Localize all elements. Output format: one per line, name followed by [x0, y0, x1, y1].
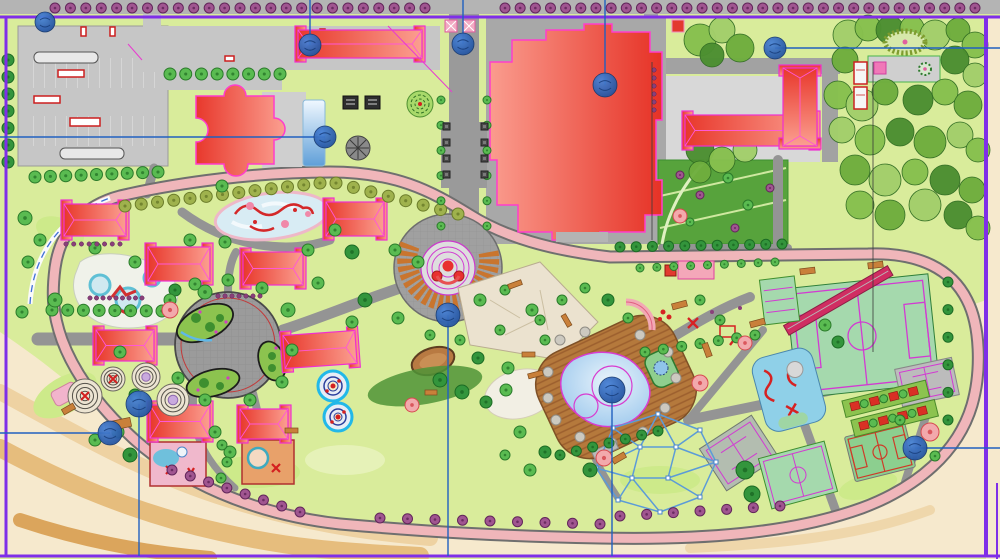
apartment-block: [145, 243, 213, 285]
tree-center-dot: [928, 7, 931, 10]
tree-center-dot: [898, 7, 901, 10]
forest-canopy: [903, 85, 933, 115]
callout-marker[interactable]: [903, 436, 927, 460]
hedge-shrub: [120, 296, 124, 300]
tree-center-dot: [220, 184, 223, 187]
hedge-shrub: [87, 242, 91, 246]
pergola: [343, 96, 358, 109]
tree-center-dot: [662, 348, 665, 351]
tree-center-dot: [23, 216, 27, 220]
tree-center-dot: [777, 7, 780, 10]
tree-center-dot: [837, 7, 840, 10]
tree-center-dot: [750, 492, 754, 496]
tree-center-dot: [100, 7, 103, 10]
tree-center-dot: [331, 7, 334, 10]
pavilion-pad: [874, 62, 886, 74]
tree-center-dot: [248, 398, 251, 401]
rope-web-node: [658, 510, 662, 514]
forest-canopy: [959, 177, 985, 203]
rope-web-node: [630, 476, 634, 480]
tree-center-dot: [424, 7, 427, 10]
callout-marker[interactable]: [98, 421, 122, 445]
forest-canopy: [689, 161, 711, 183]
tree-center-dot: [599, 523, 602, 526]
forest-canopy: [875, 200, 905, 230]
tree-center-dot: [54, 7, 57, 10]
tree-center-dot: [781, 243, 784, 246]
hedge-shrub: [140, 296, 144, 300]
tree-center-dot: [145, 309, 148, 312]
tree-center-dot: [761, 7, 764, 10]
tree-center-dot: [439, 208, 442, 211]
tree-center-dot: [504, 454, 507, 457]
tree-center-dot: [947, 308, 950, 311]
tree-center-dot: [172, 199, 175, 202]
tree-center-dot: [280, 505, 283, 508]
tree-center-dot: [489, 520, 492, 523]
tree-center-dot: [193, 282, 196, 285]
tree-center-dot: [221, 444, 224, 447]
tree-center-dot: [571, 522, 574, 525]
master-plan-drawing: Park and resort landscape master plan (C…: [0, 0, 1000, 559]
tree-center-dot: [518, 430, 521, 433]
tree-center-dot: [564, 7, 567, 10]
tree-center-dot: [678, 214, 682, 218]
rope-web-node: [638, 445, 642, 449]
tree-center-dot: [506, 366, 509, 369]
tree-center-dot: [393, 248, 396, 251]
tree-center-dot: [133, 260, 136, 263]
callout-marker[interactable]: [35, 12, 55, 32]
hedge-shrub: [237, 294, 241, 298]
forest-canopy: [726, 34, 754, 62]
tree-center-dot: [26, 260, 29, 263]
tree-center-dot: [244, 493, 247, 496]
tree-center-dot: [836, 340, 839, 343]
tree-center-dot: [779, 505, 782, 508]
tree-center-dot: [746, 7, 749, 10]
tree-center-dot: [610, 7, 613, 10]
forest-canopy: [932, 79, 958, 105]
tree-center-dot: [774, 261, 776, 263]
tree-center-dot: [716, 7, 719, 10]
tree-center-dot: [947, 364, 950, 367]
tree-center-dot: [406, 517, 409, 520]
tree-center-dot: [66, 309, 69, 312]
tree-center-dot: [393, 7, 396, 10]
hedge-shrub: [652, 100, 656, 104]
tree-center-dot: [947, 391, 950, 394]
tree-center-dot: [544, 339, 547, 342]
tree-center-dot: [226, 278, 229, 281]
tree-center-dot: [440, 99, 442, 101]
tree-center-dot: [575, 450, 578, 453]
tree-center-dot: [680, 345, 683, 348]
tree-center-dot: [53, 298, 57, 302]
tree-center-dot: [110, 172, 113, 175]
tree-center-dot: [689, 221, 691, 223]
forest-canopy: [855, 125, 885, 155]
forest-canopy: [920, 20, 950, 50]
tree-center-dot: [168, 298, 171, 301]
tree-center-dot: [539, 319, 542, 322]
hedge-shrub: [64, 242, 68, 246]
tree-center-dot: [476, 356, 479, 359]
forest-canopy: [954, 91, 982, 119]
tree-center-dot: [93, 438, 96, 441]
hedge-shrub: [216, 294, 220, 298]
tree-center-dot: [162, 7, 165, 10]
tree-center-dot: [168, 72, 171, 75]
tree-center-dot: [113, 309, 116, 312]
forest-canopy: [914, 126, 946, 158]
tree-center-dot: [363, 298, 367, 302]
forest-canopy: [709, 147, 735, 173]
planter-inner: [483, 141, 486, 144]
tree-center-dot: [700, 244, 703, 247]
tree-center-dot: [188, 197, 191, 200]
tree-center-dot: [352, 186, 355, 189]
tree-center-dot: [203, 398, 206, 401]
rope-web-node: [616, 498, 620, 502]
tree-center-dot: [528, 468, 531, 471]
tree-center-dot: [176, 376, 179, 379]
tree-center-dot: [486, 99, 488, 101]
tree-center-dot: [316, 281, 319, 284]
tree-center-dot: [220, 477, 223, 480]
gate-booth: [672, 20, 684, 32]
tree-center-dot: [657, 430, 660, 433]
tree-center-dot: [239, 7, 242, 10]
tree-center-dot: [306, 248, 309, 251]
hedge-shrub: [102, 242, 106, 246]
tree-center-dot: [416, 260, 419, 263]
hedge-shrub: [223, 294, 227, 298]
tree-center-dot: [85, 7, 88, 10]
tree-center-dot: [263, 72, 266, 75]
hedge-shrub: [101, 296, 105, 300]
planter-inner: [483, 157, 486, 160]
tree-center-dot: [429, 334, 432, 337]
tree-center-dot: [868, 7, 871, 10]
tree-center-dot: [404, 199, 407, 202]
tree-center-dot: [852, 7, 855, 10]
hedge-shrub: [72, 242, 76, 246]
forest-canopy: [829, 117, 855, 143]
tree-center-dot: [913, 7, 916, 10]
tree-center-dot: [504, 7, 507, 10]
tree-center-dot: [260, 286, 263, 289]
tree-center-dot: [595, 7, 598, 10]
tree-center-dot: [530, 308, 533, 311]
forest-canopy: [886, 118, 914, 146]
tree-center-dot: [723, 263, 725, 265]
tree-center-dot: [655, 7, 658, 10]
tree-center-dot: [440, 175, 442, 177]
tree-center-dot: [667, 245, 670, 248]
bench: [522, 352, 535, 357]
rope-web-node: [656, 412, 660, 416]
tree-center-dot: [156, 170, 159, 173]
tree-center-dot: [231, 72, 234, 75]
rope-web-node: [674, 445, 678, 449]
tree-center-dot: [519, 7, 522, 10]
tree-center-dot: [748, 243, 751, 246]
tree-center-dot: [580, 7, 583, 10]
forest-canopy: [902, 159, 928, 185]
tree-center-dot: [247, 72, 250, 75]
tree-center-dot: [302, 183, 305, 186]
tree-center-dot: [440, 124, 442, 126]
rope-web-node: [698, 495, 702, 499]
tree-center-dot: [226, 461, 229, 464]
market-stall: [854, 62, 867, 84]
tree-center-dot: [543, 450, 546, 453]
tree-center-dot: [934, 455, 937, 458]
tree-center-dot: [504, 289, 507, 292]
tree-center-dot: [362, 7, 365, 10]
tree-center-dot: [619, 246, 622, 249]
hedge-shrub: [127, 296, 131, 300]
tree-center-dot: [95, 173, 98, 176]
tree-center-dot: [807, 7, 810, 10]
tree-center-dot: [98, 309, 101, 312]
tree-center-dot: [460, 390, 464, 394]
tree-center-dot: [422, 204, 425, 207]
tree-center-dot: [171, 469, 174, 472]
hedge-shrub: [230, 294, 234, 298]
tree-center-dot: [316, 7, 319, 10]
callout-marker[interactable]: [314, 126, 336, 148]
tree-center-dot: [156, 201, 159, 204]
tree-center-dot: [672, 511, 675, 514]
hedge-shrub: [79, 242, 83, 246]
tree-center-dot: [50, 308, 53, 311]
tree-center-dot: [188, 238, 191, 241]
tree-center-dot: [69, 7, 72, 10]
tree-center-dot: [602, 456, 606, 460]
tree-center-dot: [534, 7, 537, 10]
tree-center-dot: [928, 430, 933, 435]
tree-center-dot: [588, 468, 592, 472]
tree-center-dot: [698, 381, 702, 385]
tree-center-dot: [486, 149, 488, 151]
hedge-shrub: [133, 296, 137, 300]
tree-center-dot: [216, 72, 219, 75]
market-stall: [854, 87, 867, 109]
hedge-shrub: [110, 242, 114, 246]
tree-center-dot: [974, 7, 977, 10]
tree-center-dot: [670, 7, 673, 10]
tree-center-dot: [732, 244, 735, 247]
callout-marker[interactable]: [452, 33, 474, 55]
tree-center-dot: [544, 521, 547, 524]
tree-center-dot: [334, 181, 337, 184]
tree-center-dot: [379, 517, 382, 520]
tree-center-dot: [228, 450, 231, 453]
tree-center-dot: [765, 243, 768, 246]
apartment-block: [779, 65, 821, 149]
forest-canopy: [700, 43, 724, 67]
tree-center-dot: [656, 266, 658, 268]
tree-center-dot: [82, 309, 85, 312]
tree-center-dot: [735, 337, 738, 340]
tree-center-dot: [686, 7, 689, 10]
forest-canopy: [840, 155, 870, 185]
tree-center-dot: [679, 174, 681, 176]
tree-center-dot: [606, 298, 609, 301]
forest-canopy: [846, 191, 874, 219]
spa-pool: [654, 361, 668, 375]
tree-center-dot: [223, 240, 226, 243]
hedge-shrub: [94, 296, 98, 300]
rope-web-node: [714, 460, 718, 464]
forest-canopy: [909, 189, 941, 221]
bench: [285, 428, 298, 433]
tree-center-dot: [286, 185, 289, 188]
tree-center-dot: [823, 323, 826, 326]
tree-center-dot: [725, 508, 728, 511]
tree-center-dot: [49, 175, 52, 178]
planter-inner: [445, 125, 448, 128]
callout-marker[interactable]: [764, 37, 786, 59]
tree-center-dot: [559, 454, 562, 457]
rope-web-node: [698, 428, 702, 432]
tree-center-dot: [701, 7, 704, 10]
tree-center-dot: [38, 238, 41, 241]
tree-center-dot: [286, 308, 290, 312]
tree-center-dot: [625, 7, 628, 10]
callout-marker[interactable]: [599, 377, 625, 403]
tree-center-dot: [716, 244, 719, 247]
tree-center-dot: [747, 204, 750, 207]
hedge-shrub: [88, 296, 92, 300]
tree-center-dot: [769, 187, 771, 189]
tree-center-dot: [253, 189, 256, 192]
tree-center-dot: [254, 7, 257, 10]
tree-center-dot: [822, 7, 825, 10]
tree-center-dot: [516, 520, 519, 523]
tree-center-dot: [484, 400, 487, 403]
hedge-shrub: [652, 68, 656, 72]
carousel-pad: [324, 403, 352, 431]
tree-center-dot: [699, 194, 701, 196]
tree-center-dot: [213, 430, 216, 433]
tree-center-dot: [792, 7, 795, 10]
forest-canopy: [872, 79, 898, 105]
tree-center-dot: [740, 262, 742, 264]
tree-center-dot: [608, 442, 611, 445]
tree-center-dot: [290, 348, 293, 351]
sand-east-margin: [986, 17, 1000, 559]
tree-center-dot: [699, 299, 702, 302]
tree-center-dot: [333, 228, 336, 231]
carousel-pad: [318, 371, 348, 401]
tree-center-dot: [640, 434, 643, 437]
tree-center-dot: [126, 172, 129, 175]
planter-inner: [445, 173, 448, 176]
tree-center-dot: [285, 7, 288, 10]
gymnasium-steps: [556, 232, 608, 242]
tree-center-dot: [278, 72, 281, 75]
tree-center-dot: [743, 468, 748, 473]
tree-center-dot: [440, 149, 442, 151]
planter-inner: [483, 125, 486, 128]
tree-center-dot: [504, 388, 507, 391]
hedge-shrub: [652, 108, 656, 112]
tree-center-dot: [262, 499, 265, 502]
hedge-shrub: [652, 84, 656, 88]
tree-center-dot: [203, 290, 207, 294]
tree-center-dot: [20, 310, 23, 313]
tree-center-dot: [280, 380, 283, 383]
tree-center-dot: [635, 245, 638, 248]
tree-center-dot: [440, 200, 442, 202]
tree-center-dot: [118, 350, 121, 353]
tree-center-dot: [140, 203, 143, 206]
hedge-shrub: [251, 294, 255, 298]
tree-center-dot: [456, 212, 459, 215]
hedge-shrub: [244, 294, 248, 298]
spiral-mound: [101, 367, 125, 391]
tree-center-dot: [699, 342, 702, 345]
tree-center-dot: [347, 7, 350, 10]
tree-center-dot: [64, 174, 67, 177]
tree-center-dot: [486, 200, 488, 202]
tree-center-dot: [499, 329, 502, 332]
apartment-block: [237, 405, 291, 443]
tree-center-dot: [690, 265, 692, 267]
spiral-mound: [132, 363, 160, 391]
tree-center-dot: [438, 378, 442, 382]
tree-center-dot: [131, 7, 134, 10]
tree-center-dot: [168, 308, 172, 312]
tree-center-dot: [223, 7, 226, 10]
callout-marker[interactable]: [593, 73, 617, 97]
spiral-mound: [157, 384, 189, 416]
hedge-shrub: [652, 76, 656, 80]
tree-center-dot: [591, 446, 594, 449]
hedge-shrub: [95, 242, 99, 246]
tree-center-dot: [408, 7, 411, 10]
tree-center-dot: [673, 265, 675, 267]
tree-center-dot: [478, 298, 481, 301]
volleyball-court: [759, 276, 799, 325]
callout-marker[interactable]: [436, 303, 460, 327]
rope-web-node: [666, 476, 670, 480]
tree-center-dot: [396, 316, 399, 319]
tree-center-dot: [177, 7, 180, 10]
callout-marker[interactable]: [299, 34, 321, 56]
puzzle-pavilion: [196, 85, 285, 176]
tree-center-dot: [270, 7, 273, 10]
tree-center-dot: [639, 267, 641, 269]
tree-center-dot: [461, 519, 464, 522]
master-plan-stage: Park and resort landscape master plan (C…: [0, 0, 1000, 559]
tree-center-dot: [459, 339, 462, 342]
road-northeast-side: [822, 58, 838, 162]
tree-center-dot: [270, 187, 273, 190]
callout-marker[interactable]: [126, 391, 152, 417]
forest-canopy: [869, 164, 901, 196]
tree-center-dot: [640, 7, 643, 10]
tree-center-dot: [727, 177, 730, 180]
tree-center-dot: [624, 438, 627, 441]
tree-center-dot: [33, 175, 36, 178]
tree-center-dot: [128, 453, 132, 457]
tree-center-dot: [645, 513, 648, 516]
tree-center-dot: [192, 7, 195, 10]
